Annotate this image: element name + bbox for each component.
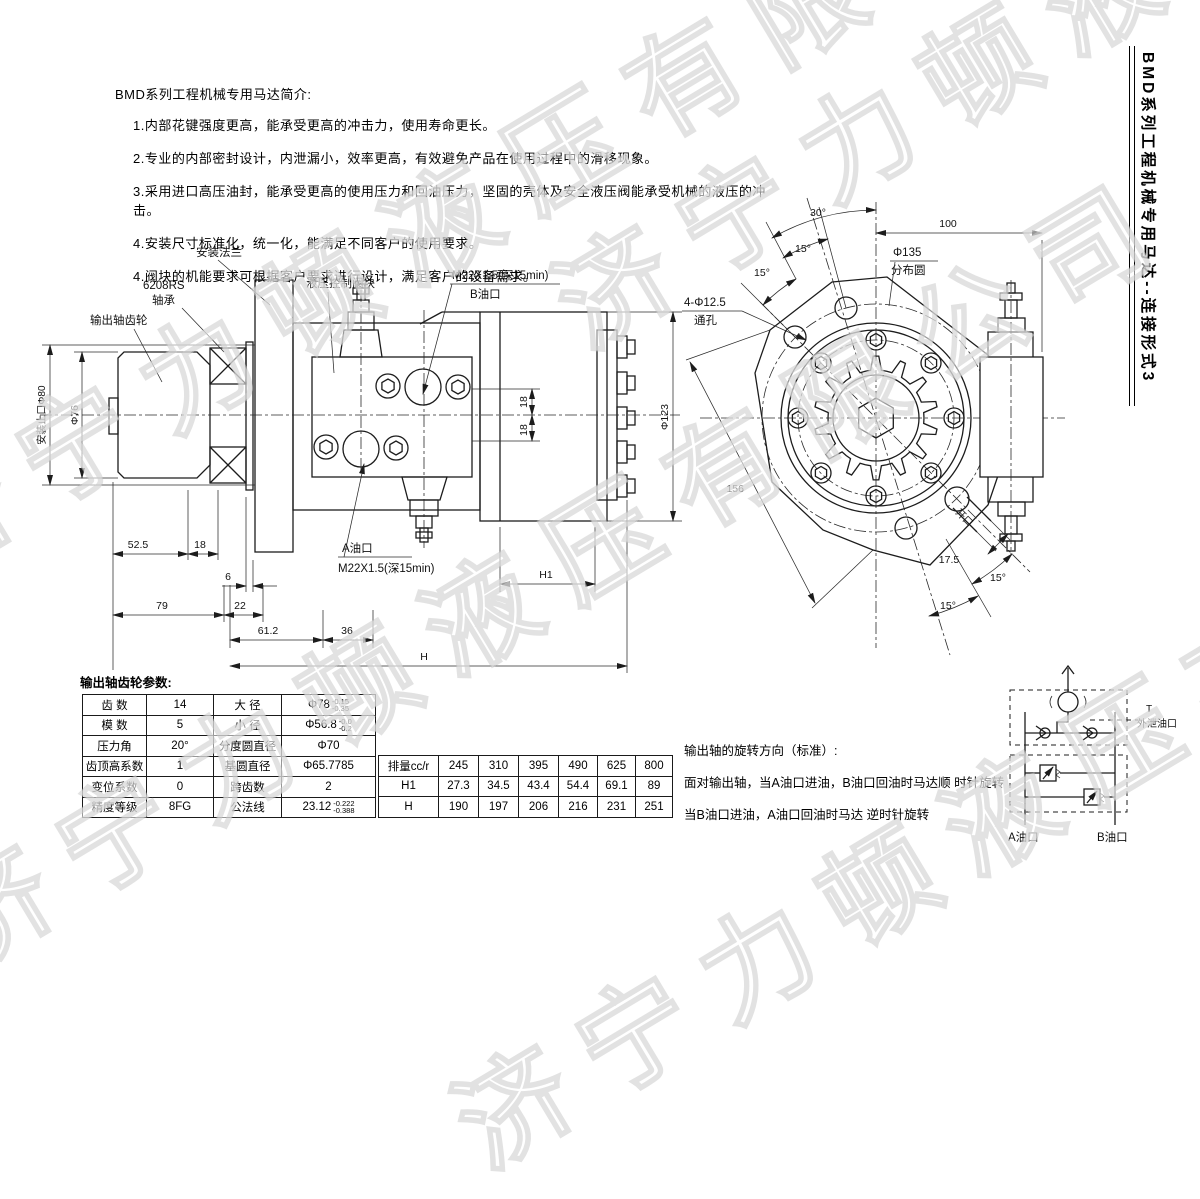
valve-block-screws bbox=[314, 374, 470, 460]
param-value: 20° bbox=[147, 736, 214, 757]
disp-cell: 245 bbox=[439, 756, 479, 777]
shaft-nub bbox=[109, 398, 118, 434]
motor-symbol bbox=[1058, 692, 1078, 712]
intro-title: BMD系列工程机械专用马达简介: bbox=[115, 84, 775, 103]
svg-text:分布圆: 分布圆 bbox=[891, 264, 926, 277]
svg-text:36: 36 bbox=[341, 625, 353, 637]
disp-cell: 43.4 bbox=[519, 776, 559, 797]
svg-text:15°: 15° bbox=[795, 243, 811, 255]
intro-block: BMD系列工程机械专用马达简介: 1.内部花键强度更高，能承受更高的冲击力，使用… bbox=[115, 84, 775, 299]
b-oil-port bbox=[405, 369, 441, 405]
relief-cartridge-bottom bbox=[988, 477, 1033, 551]
param-name: 跨齿数 bbox=[214, 777, 282, 798]
disp-cell: 89 bbox=[636, 776, 673, 797]
param-name: 齿顶高系数 bbox=[83, 756, 147, 777]
intro-item: 1.内部花键强度更高，能承受更高的冲击力，使用寿命更长。 bbox=[133, 115, 775, 134]
param-name: 公法线 bbox=[214, 797, 282, 818]
rotation-line: 面对输出轴，当A油口进油，B油口回油时马达顺 时针旋转 bbox=[684, 772, 1019, 791]
relief-cartridge-top bbox=[988, 283, 1033, 357]
left-view-drawing: Φ76 安装止口Φ80 Φ123 18 18 52.5 18 bbox=[35, 245, 682, 673]
disp-cell: 54.4 bbox=[559, 776, 598, 797]
svg-text:61.2: 61.2 bbox=[258, 625, 279, 637]
svg-text:17.5: 17.5 bbox=[939, 554, 960, 566]
param-name: 变位系数 bbox=[83, 777, 147, 798]
hydraulic-schematic: T 外泄油口 A油口 B油口 bbox=[1008, 666, 1177, 844]
svg-text:安装止口Φ80: 安装止口Φ80 bbox=[35, 385, 48, 445]
param-value: 5 bbox=[147, 715, 214, 736]
disp-cell: 625 bbox=[598, 756, 636, 777]
gear-parameter-table: 齿 数 14 大 径 Φ78-0.15-0.35 模 数 5 小 径 Φ56.8… bbox=[82, 694, 376, 818]
param-name: 模 数 bbox=[83, 715, 147, 736]
svg-text:15°: 15° bbox=[940, 600, 956, 612]
param-value: Φ78-0.15-0.35 bbox=[282, 695, 376, 716]
disp-cell: 69.1 bbox=[598, 776, 636, 797]
disp-cell: 231 bbox=[598, 797, 636, 818]
param-value: 8FG bbox=[147, 797, 214, 818]
bearing-spacer bbox=[246, 342, 253, 490]
disp-cell: 251 bbox=[636, 797, 673, 818]
side-rule bbox=[1134, 46, 1135, 406]
drawing-page: { "watermark": { "text": "济宁力顿液压有限公司" },… bbox=[0, 0, 1200, 854]
left-view-dimensions: Φ76 安装止口Φ80 Φ123 18 18 52.5 18 bbox=[35, 312, 682, 673]
motor-link bbox=[1057, 712, 1068, 733]
disp-cell: 310 bbox=[479, 756, 519, 777]
svg-text:H: H bbox=[420, 651, 428, 663]
rotation-direction-block: 输出轴的旋转方向（标准）: 面对输出轴，当A油口进油，B油口回油时马达顺 时针旋… bbox=[684, 740, 1019, 836]
param-name: 大 径 bbox=[214, 695, 282, 716]
svg-text:79: 79 bbox=[156, 600, 168, 612]
drain-port-label: 外泄油口 bbox=[1137, 717, 1177, 730]
disp-cell: 190 bbox=[439, 797, 479, 818]
motor-housing bbox=[293, 323, 480, 510]
relief-valve bbox=[1025, 765, 1115, 781]
param-name: 压力角 bbox=[83, 736, 147, 757]
svg-text:Φ135: Φ135 bbox=[893, 247, 921, 259]
disp-cell: 490 bbox=[559, 756, 598, 777]
disp-cell: 34.5 bbox=[479, 776, 519, 797]
svg-text:通孔: 通孔 bbox=[694, 314, 717, 327]
intro-item: 2.专业的内部密封设计，内泄漏小，效率更高，有效避免产品在使用过程中的滑移现象。 bbox=[133, 148, 775, 167]
disp-cell: 395 bbox=[519, 756, 559, 777]
param-value: 0 bbox=[147, 777, 214, 798]
param-value: Φ70 bbox=[282, 736, 376, 757]
intro-item: 4.阀块的机能要求可根据客户要求进行设计，满足客户的设备需求。 bbox=[133, 266, 775, 285]
svg-text:A油口: A油口 bbox=[342, 541, 373, 555]
rotation-line: 当B油口进油，A油口回油时马达 逆时针旋转 bbox=[684, 804, 1019, 823]
param-name: 分度圆直径 bbox=[214, 736, 282, 757]
param-value: 23.12-0.222-0.388 bbox=[282, 797, 376, 818]
svg-text:6: 6 bbox=[225, 571, 231, 583]
svg-text:156: 156 bbox=[726, 483, 744, 495]
rotation-title: 输出轴的旋转方向（标准）: bbox=[684, 740, 1019, 759]
disp-cell: 216 bbox=[559, 797, 598, 818]
side-valve-block bbox=[980, 357, 1043, 477]
schematic-box bbox=[1010, 755, 1127, 812]
relief-valve bbox=[1025, 789, 1115, 805]
disp-header: 排量cc/r bbox=[379, 756, 439, 777]
intro-item: 4.安装尺寸标准化，统一化，能满足不同客户的使用要求。 bbox=[133, 233, 775, 252]
motor-arrow bbox=[1084, 696, 1086, 708]
page-title: BMD系列工程机械专用马达--连接形式3 bbox=[1138, 52, 1160, 383]
b-port-label: B油口 bbox=[1097, 830, 1128, 844]
gear-table-title: 输出轴齿轮参数: bbox=[80, 672, 172, 691]
svg-text:18: 18 bbox=[194, 539, 206, 551]
svg-text:18: 18 bbox=[518, 424, 530, 436]
t-port-label: T bbox=[1146, 704, 1152, 715]
param-name: 齿 数 bbox=[83, 695, 147, 716]
svg-text:输出轴齿轮: 输出轴齿轮 bbox=[90, 313, 148, 327]
svg-text:22: 22 bbox=[234, 600, 246, 612]
motor-arrow bbox=[1050, 696, 1052, 708]
param-value: 2 bbox=[282, 777, 376, 798]
bearing-6208rs bbox=[210, 348, 246, 483]
body-chamfer bbox=[420, 312, 442, 324]
intro-item: 3.采用进口高压油封，能承受更高的使用压力和回油压力，坚固的壳体及安全液压阀能承… bbox=[133, 181, 775, 219]
svg-text:Φ123: Φ123 bbox=[659, 404, 671, 430]
param-name: 基圆直径 bbox=[214, 756, 282, 777]
svg-text:15°: 15° bbox=[990, 572, 1006, 584]
disp-cell: 197 bbox=[479, 797, 519, 818]
disp-header: H bbox=[379, 797, 439, 818]
side-rule bbox=[1129, 46, 1130, 406]
svg-text:18: 18 bbox=[518, 396, 530, 408]
svg-text:30°: 30° bbox=[810, 207, 826, 219]
param-value: Φ56.8-0.0-0.2 bbox=[282, 715, 376, 736]
disp-cell: 800 bbox=[636, 756, 673, 777]
svg-text:52.5: 52.5 bbox=[128, 539, 149, 551]
disp-header: H1 bbox=[379, 776, 439, 797]
param-value: Φ65.7785 bbox=[282, 756, 376, 777]
mounting-flange bbox=[255, 280, 293, 552]
svg-text:H1: H1 bbox=[539, 569, 553, 581]
displacement-table: 排量cc/r 245 310 395 490 625 800 H1 27.3 3… bbox=[378, 755, 673, 818]
svg-text:M22X1.5(深15min): M22X1.5(深15min) bbox=[338, 561, 435, 575]
param-name: 小 径 bbox=[214, 715, 282, 736]
svg-text:100: 100 bbox=[939, 218, 957, 230]
svg-text:Φ76: Φ76 bbox=[69, 405, 81, 425]
param-value: 14 bbox=[147, 695, 214, 716]
rear-bolts bbox=[617, 336, 635, 497]
param-value: 1 bbox=[147, 756, 214, 777]
param-name: 精度等级 bbox=[83, 797, 147, 818]
motor-body bbox=[480, 312, 607, 521]
disp-cell: 27.3 bbox=[439, 776, 479, 797]
disp-cell: 206 bbox=[519, 797, 559, 818]
